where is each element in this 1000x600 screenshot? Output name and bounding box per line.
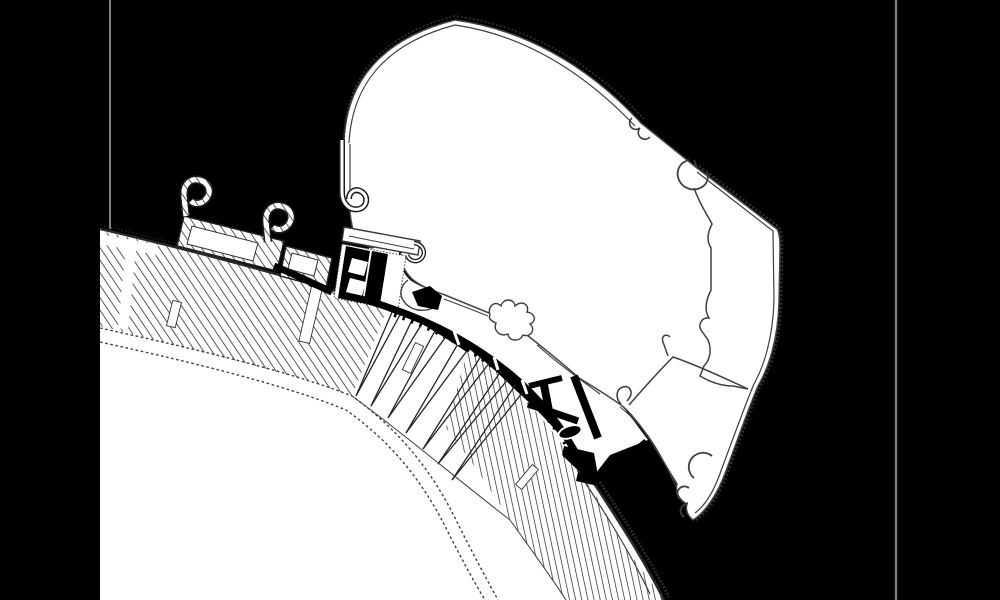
cross-section-diagram (0, 0, 1000, 600)
screenshot-root (0, 0, 1000, 600)
